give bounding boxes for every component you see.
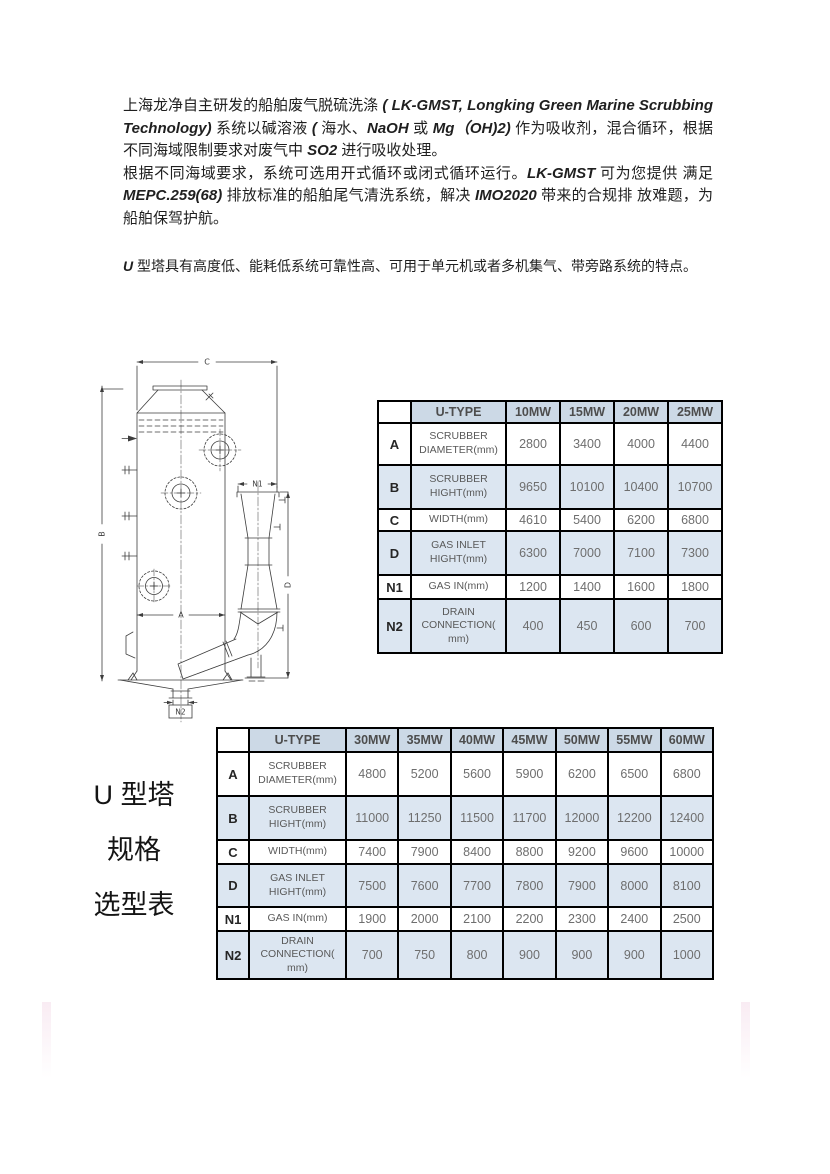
value-cell: 8100 [661,864,713,907]
value-cell: 900 [608,931,660,979]
column-header: 20MW [614,401,668,423]
value-cell: 10400 [614,465,668,509]
row-key-cell: N2 [217,931,249,979]
value-cell: 900 [556,931,608,979]
value-cell: 4800 [346,752,398,796]
text-segment: 上海龙净自主研发的船舶废气脱硫洗涤 [123,97,382,114]
dimension-label-d: D [284,582,293,588]
row-key-cell: N2 [378,599,411,653]
value-cell: 7900 [556,864,608,907]
row-param-cell: WIDTH(mm) [249,840,346,864]
value-cell: 1400 [560,575,614,599]
value-cell: 2500 [661,907,713,931]
value-cell: 4000 [614,423,668,465]
value-cell: 8800 [503,840,555,864]
table-row: N2DRAIN CONNECTION( mm)400450600700 [378,599,722,653]
value-cell: 6500 [608,752,660,796]
value-cell: 12400 [661,796,713,840]
row-key-cell: D [217,864,249,907]
text-segment: 型塔具有高度低、能耗低系统可靠性高、可用于单元机或者多机集气、带旁路系统的特点。 [133,258,697,274]
row-param-cell: GAS INLET HIGHT(mm) [249,864,346,907]
row-param-cell: SCRUBBER HIGHT(mm) [411,465,506,509]
text-segment: 排放标准的船舶尾气清洗系统，解决 [222,187,475,204]
value-cell: 1900 [346,907,398,931]
table-row: BSCRUBBER HIGHT(mm)9650101001040010700 [378,465,722,509]
table-row: CWIDTH(mm)4610540062006800 [378,509,722,531]
table-row: N1GAS IN(mm)1900200021002200230024002500 [217,907,713,931]
value-cell: 3400 [560,423,614,465]
tower-bottom [118,671,243,698]
value-cell: 450 [560,599,614,653]
value-cell: 11250 [398,796,450,840]
text-segment: NaOH [367,120,409,137]
column-header: U-TYPE [249,728,346,752]
feature-text-block: U 型塔具有高度低、能耗低系统可靠性高、可用于单元机或者多机集气、带旁路系统的特… [123,255,723,277]
caption-line: U 型塔 [68,768,200,823]
row-param-cell: SCRUBBER HIGHT(mm) [249,796,346,840]
value-cell: 2300 [556,907,608,931]
column-header: 35MW [398,728,450,752]
table-row: DGAS INLET HIGHT(mm)75007600770078007900… [217,864,713,907]
row-param-cell: GAS IN(mm) [249,907,346,931]
value-cell: 9600 [608,840,660,864]
dimension-label-n1: N1 [252,480,263,489]
value-cell: 12200 [608,796,660,840]
value-cell: 7900 [398,840,450,864]
value-cell: 7400 [346,840,398,864]
dimension-label-n2: N2 [175,708,186,717]
side-nozzles [122,436,137,561]
value-cell: 6300 [506,531,560,575]
scrubber-drawing-svg: C B A D N1 N2 [95,336,295,728]
dimension-label-b: B [98,531,107,537]
row-key-cell: B [378,465,411,509]
value-cell: 750 [398,931,450,979]
value-cell: 10100 [560,465,614,509]
value-cell: 6800 [668,509,722,531]
column-header: 45MW [503,728,555,752]
value-cell: 600 [614,599,668,653]
column-header: U-TYPE [411,401,506,423]
column-header: 25MW [668,401,722,423]
column-header: 60MW [661,728,713,752]
dimension-label-a: A [178,611,184,620]
value-cell: 5900 [503,752,555,796]
manhole-lower [137,569,171,603]
value-cell: 7700 [451,864,503,907]
text-segment: LK-GMST [527,165,595,182]
text-segment: 或 [409,120,433,137]
value-cell: 2800 [506,423,560,465]
row-key-cell: N1 [217,907,249,931]
page-edge-artifact [42,1002,51,1078]
value-cell: 1600 [614,575,668,599]
row-key-cell: D [378,531,411,575]
column-header: 15MW [560,401,614,423]
intro-paragraph: 根据不同海域要求，系统可选用开式循环或闭式循环运行。LK-GMST 可为您提供 … [123,163,713,231]
column-header: 55MW [608,728,660,752]
page-edge-artifact [741,1002,750,1078]
value-cell: 6200 [614,509,668,531]
column-header: 10MW [506,401,560,423]
value-cell: 7100 [614,531,668,575]
value-cell: 8400 [451,840,503,864]
table-row: CWIDTH(mm)74007900840088009200960010000 [217,840,713,864]
dimension-label-c: C [204,358,210,367]
row-key-cell: N1 [378,575,411,599]
inlet-funnel [237,492,285,631]
text-segment: 系统以碱溶液 [212,120,312,137]
side-caption: U 型塔规格选型表 [68,768,200,933]
row-param-cell: DRAIN CONNECTION( mm) [411,599,506,653]
row-param-cell: DRAIN CONNECTION( mm) [249,931,346,979]
value-cell: 4400 [668,423,722,465]
table-row: BSCRUBBER HIGHT(mm)110001125011500117001… [217,796,713,840]
value-cell: 7800 [503,864,555,907]
caption-line: 选型表 [68,878,200,933]
inlet-duct [126,632,248,679]
value-cell: 7300 [668,531,722,575]
value-cell: 9200 [556,840,608,864]
value-cell: 6800 [661,752,713,796]
value-cell: 11000 [346,796,398,840]
table-row: N2DRAIN CONNECTION( mm)70075080090090090… [217,931,713,979]
column-header: 40MW [451,728,503,752]
intro-text-block: 上海龙净自主研发的船舶废气脱硫洗涤 ( LK-GMST, Longking Gr… [123,95,713,231]
value-cell: 8000 [608,864,660,907]
row-key-cell: A [217,752,249,796]
value-cell: 6200 [556,752,608,796]
table-header-row: U-TYPE10MW15MW20MW25MW [378,401,722,423]
value-cell: 10700 [668,465,722,509]
value-cell: 1200 [506,575,560,599]
text-segment: 进行吸收处理。 [337,142,446,159]
dimension-c [137,360,277,488]
column-header: 50MW [556,728,608,752]
text-segment: U [123,258,133,274]
value-cell: 1800 [668,575,722,599]
value-cell: 9650 [506,465,560,509]
value-cell: 10000 [661,840,713,864]
row-param-cell: GAS IN(mm) [411,575,506,599]
value-cell: 12000 [556,796,608,840]
text-segment: SO2 [307,142,337,159]
row-param-cell: GAS INLET HIGHT(mm) [411,531,506,575]
spec-table-large: U-TYPE30MW35MW40MW45MW50MW55MW60MWASCRUB… [216,727,714,980]
document-page: { "document": { "intro_paragraphs": [ { … [0,0,830,1174]
value-cell: 11700 [503,796,555,840]
value-cell: 800 [451,931,503,979]
value-cell: 5400 [560,509,614,531]
text-segment: 根据不同海域要求，系统可选用开式循环或闭式循环运行。 [123,165,527,182]
row-param-cell: SCRUBBER DIAMETER(mm) [249,752,346,796]
value-cell: 5600 [451,752,503,796]
table-corner-cell [217,728,249,752]
value-cell: 2200 [503,907,555,931]
table-corner-cell [378,401,411,423]
value-cell: 2000 [398,907,450,931]
row-key-cell: A [378,423,411,465]
scrubber-diagram: C B A D N1 N2 [95,336,295,728]
row-param-cell: SCRUBBER DIAMETER(mm) [411,423,506,465]
text-segment: 海水、 [317,120,367,137]
manhole-upper [199,429,241,471]
value-cell: 11500 [451,796,503,840]
row-key-cell: C [378,509,411,531]
column-header: 30MW [346,728,398,752]
spec-table-small: U-TYPE10MW15MW20MW25MWASCRUBBER DIAMETER… [377,400,723,654]
text-segment: MEPC.259(68) [123,187,222,204]
intro-paragraph: 上海龙净自主研发的船舶废气脱硫洗涤 ( LK-GMST, Longking Gr… [123,95,713,163]
value-cell: 4610 [506,509,560,531]
value-cell: 7000 [560,531,614,575]
row-param-cell: WIDTH(mm) [411,509,506,531]
value-cell: 2400 [608,907,660,931]
value-cell: 7500 [346,864,398,907]
value-cell: 7600 [398,864,450,907]
value-cell: 1000 [661,931,713,979]
caption-line: 规格 [68,823,200,878]
table-row: ASCRUBBER DIAMETER(mm)480052005600590062… [217,752,713,796]
value-cell: 700 [668,599,722,653]
table-row: DGAS INLET HIGHT(mm)6300700071007300 [378,531,722,575]
table-row: N1GAS IN(mm)1200140016001800 [378,575,722,599]
value-cell: 900 [503,931,555,979]
value-cell: 2100 [451,907,503,931]
table-row: ASCRUBBER DIAMETER(mm)2800340040004400 [378,423,722,465]
text-segment: 可为您提供 满足 [595,165,713,182]
text-segment: Mg（OH)2) [433,120,511,137]
value-cell: 400 [506,599,560,653]
value-cell: 5200 [398,752,450,796]
text-segment: IMO2020 [475,187,537,204]
value-cell: 700 [346,931,398,979]
row-key-cell: B [217,796,249,840]
feature-paragraph: U 型塔具有高度低、能耗低系统可靠性高、可用于单元机或者多机集气、带旁路系统的特… [123,255,723,277]
row-key-cell: C [217,840,249,864]
table-header-row: U-TYPE30MW35MW40MW45MW50MW55MW60MW [217,728,713,752]
